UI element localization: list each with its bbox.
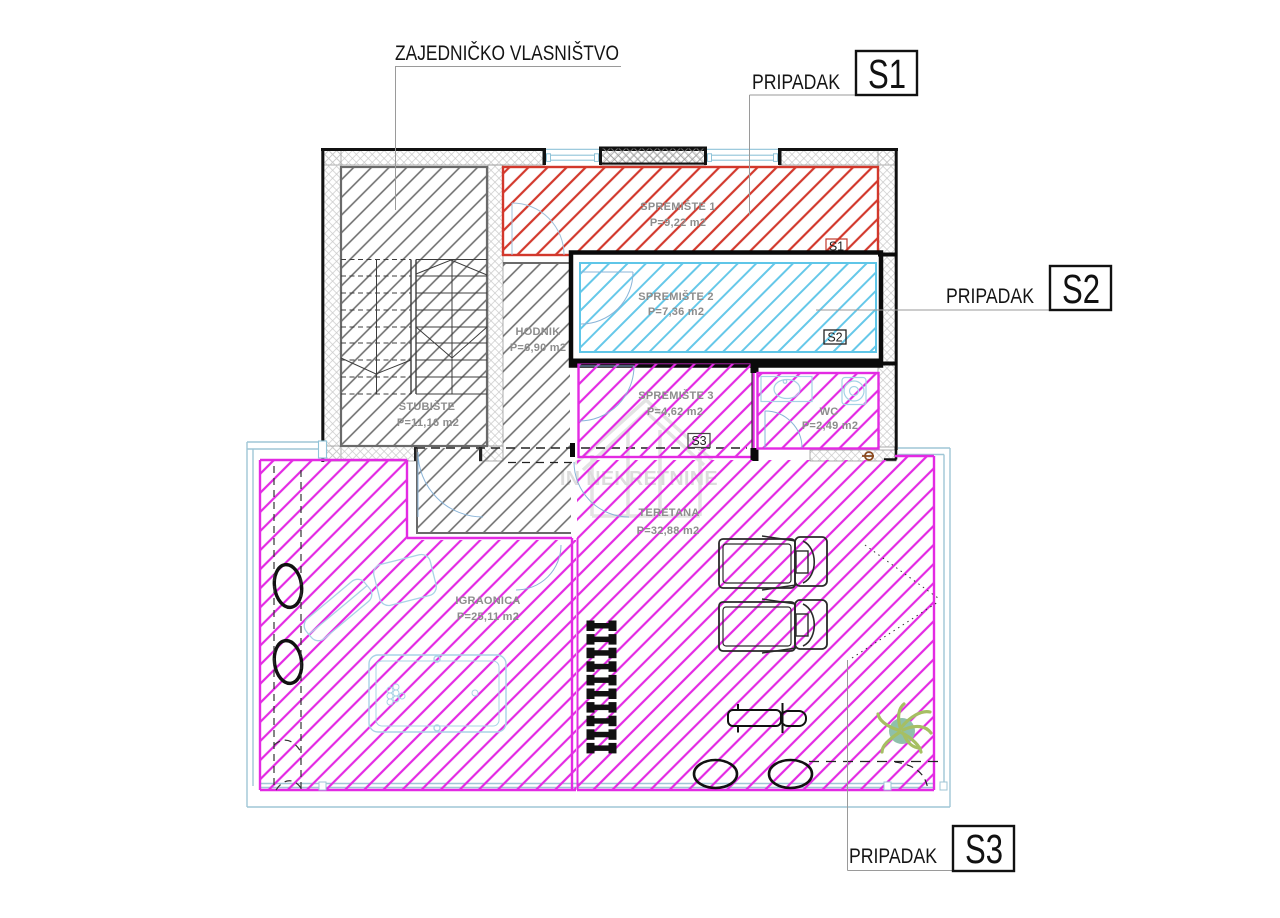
svg-text:P=11,16 m2: P=11,16 m2	[397, 417, 459, 429]
svg-text:SPREMIŠTE 2: SPREMIŠTE 2	[638, 290, 714, 303]
svg-text:P=4,62 m2: P=4,62 m2	[647, 406, 703, 418]
svg-text:S1: S1	[868, 51, 906, 97]
svg-text:IGRAONICA: IGRAONICA	[455, 595, 520, 607]
svg-text:S3: S3	[965, 826, 1003, 872]
svg-text:P=7,36 m2: P=7,36 m2	[648, 306, 704, 318]
svg-text:STUBIŠTE: STUBIŠTE	[399, 400, 455, 413]
svg-text:P=32,88 m2: P=32,88 m2	[637, 525, 700, 537]
svg-text:WC: WC	[820, 406, 839, 418]
svg-text:PRIPADAK: PRIPADAK	[946, 285, 1034, 308]
svg-text:TERETANA: TERETANA	[638, 507, 699, 519]
svg-text:P=2,49 m2: P=2,49 m2	[802, 420, 858, 432]
svg-text:S3: S3	[691, 434, 706, 448]
svg-text:PRIPADAK: PRIPADAK	[752, 71, 840, 94]
svg-text:P=9,22 m2: P=9,22 m2	[650, 217, 706, 229]
svg-text:P=25,11 m2: P=25,11 m2	[457, 611, 519, 623]
svg-text:ZAJEDNIČKO VLASNIŠTVO: ZAJEDNIČKO VLASNIŠTVO	[395, 42, 619, 65]
svg-text:P=6,90 m2: P=6,90 m2	[510, 342, 566, 354]
svg-text:SPREMIŠTE 1: SPREMIŠTE 1	[640, 200, 716, 213]
svg-text:S2: S2	[1062, 266, 1100, 312]
svg-text:S2: S2	[827, 331, 842, 345]
svg-text:PRIPADAK: PRIPADAK	[849, 845, 937, 868]
svg-text:SPREMIŠTE 3: SPREMIŠTE 3	[638, 389, 714, 402]
svg-text:HODNIK: HODNIK	[516, 326, 561, 338]
